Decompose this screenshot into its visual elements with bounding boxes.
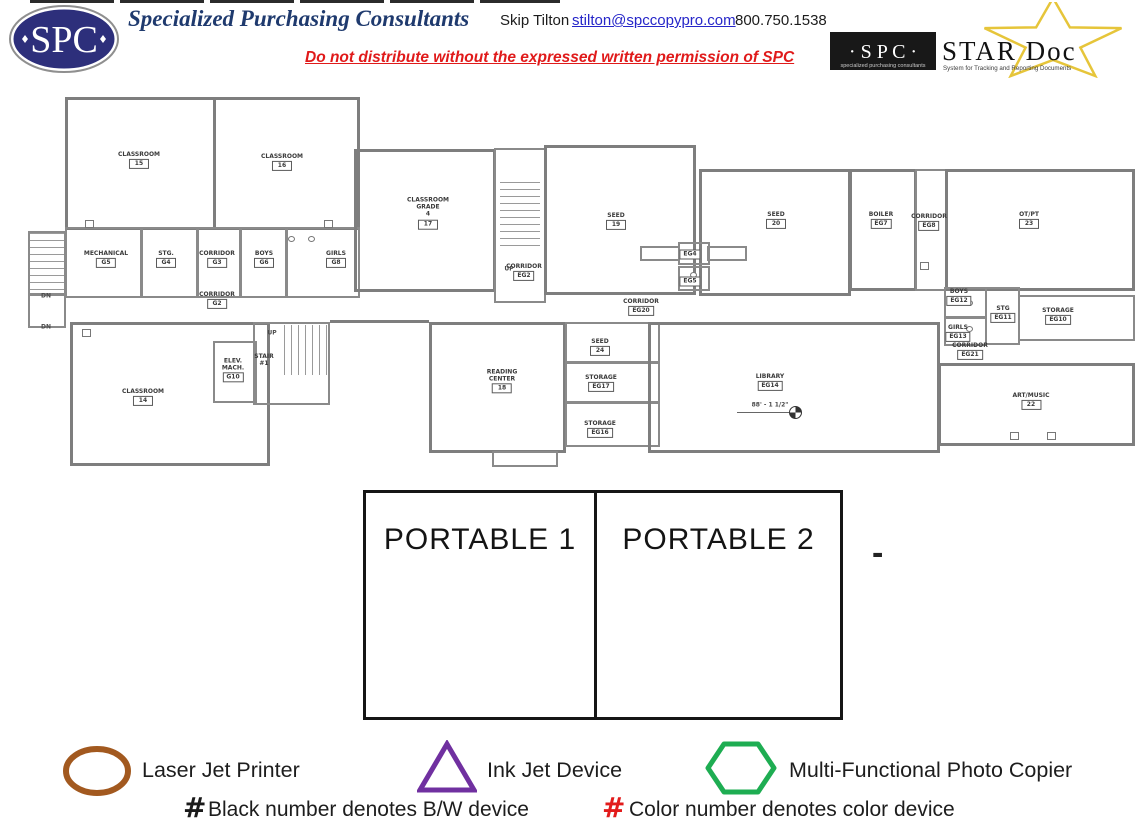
dimension-line — [737, 412, 789, 413]
stray-dash: - — [872, 534, 883, 573]
stair1-treads — [284, 325, 327, 375]
room-label: READINGCENTER18 — [487, 368, 518, 393]
wall-eg4-wing-right — [707, 246, 747, 261]
photo-copier-label: Multi-Functional Photo Copier — [789, 758, 1072, 783]
wall-eg4-wing-left — [640, 246, 680, 261]
room-label: EG4 — [679, 249, 700, 260]
color-note: Color number denotes color device — [629, 798, 955, 822]
floorplan-annotation: DN — [41, 324, 51, 331]
room-label: CORRIDOREG21 — [952, 342, 988, 360]
page: SPC Specialized Purchasing Consultants S… — [0, 0, 1140, 828]
toilet-icon — [308, 236, 315, 242]
bw-note: Black number denotes B/W device — [208, 798, 529, 822]
room-label: STG.G4 — [156, 250, 176, 268]
portable-2-box: PORTABLE 2 — [594, 490, 843, 720]
wall-storage-eg10 — [1018, 295, 1135, 341]
room-label: BOILEREG7 — [869, 211, 893, 229]
thermostat-box — [85, 220, 94, 228]
wall-otpt — [945, 169, 1135, 291]
room-label: GIRLSG8 — [326, 250, 346, 268]
room-label: CLASSROOM16 — [261, 153, 303, 171]
room-label: ART/MUSIC22 — [1012, 392, 1049, 410]
thermostat-box — [324, 220, 333, 228]
ink-jet-triangle-icon — [417, 740, 477, 794]
toilet-icon — [288, 236, 295, 242]
room-label: CORRIDOREG20 — [623, 298, 659, 316]
north-arrow-icon — [789, 406, 802, 419]
wall-seed20 — [699, 169, 851, 296]
thermostat-box — [82, 329, 91, 337]
room-label: STORAGEEG16 — [584, 420, 616, 438]
room-label: MECHANICALG5 — [84, 250, 128, 268]
bw-hash-icon: # — [183, 791, 206, 824]
room-label: BOYSEG12 — [946, 288, 971, 306]
room-label: EG5 — [679, 276, 700, 287]
thermostat-box — [920, 262, 929, 270]
thermostat-box — [1047, 432, 1056, 440]
wall-seed24 — [565, 322, 660, 363]
stairwell-treads — [500, 182, 540, 246]
room-label: CORRIDORG3 — [199, 250, 235, 268]
room-label: ELEV.MACH.G10 — [222, 357, 244, 382]
floorplan-annotation: UP — [267, 330, 276, 337]
portable-1-box: PORTABLE 1 — [363, 490, 597, 720]
room-label: BOYSG6 — [254, 250, 274, 268]
room-label: STORAGEEG17 — [585, 374, 617, 392]
thermostat-box — [1010, 432, 1019, 440]
room-label: STGEG11 — [990, 305, 1015, 323]
room-label: SEED20 — [766, 211, 786, 229]
corridor-south-wall — [330, 320, 429, 323]
wall-boiler — [849, 169, 917, 291]
ink-jet-label: Ink Jet Device — [487, 758, 622, 783]
wall-girls-g8 — [285, 227, 360, 298]
photo-copier-hexagon-icon — [705, 741, 777, 795]
room-label: GIRLSEG13 — [945, 324, 970, 342]
wall-reading-bay — [492, 451, 558, 467]
floorplan-annotation: DN — [41, 293, 51, 300]
room-label: CLASSROOMGRADE417 — [407, 197, 449, 230]
room-label: STAIR#1 — [254, 353, 273, 367]
wall-library — [648, 322, 940, 453]
laser-jet-label: Laser Jet Printer — [142, 758, 300, 783]
room-label: CORRIDOREG8 — [911, 213, 947, 231]
room-label: LIBRARYEG14 — [756, 373, 785, 391]
room-label: OT/PT23 — [1019, 211, 1039, 229]
room-label: CORRIDORG2 — [199, 291, 235, 309]
portable-1-label: PORTABLE 1 — [366, 523, 594, 557]
room-label: SEED24 — [590, 338, 610, 356]
floorplan-annotation: UP — [504, 266, 513, 273]
floorplan-annotation: 88' - 1 1/2" — [752, 402, 789, 409]
room-label: STORAGEEG10 — [1042, 307, 1074, 325]
laser-jet-oval-icon — [62, 745, 132, 797]
portable-2-label: PORTABLE 2 — [597, 523, 840, 557]
exterior-stairs-upper — [28, 231, 66, 295]
color-hash-icon: # — [602, 791, 625, 824]
room-label: SEED19 — [606, 212, 626, 230]
room-label: CLASSROOM15 — [118, 151, 160, 169]
room-label: CLASSROOM14 — [122, 388, 164, 406]
